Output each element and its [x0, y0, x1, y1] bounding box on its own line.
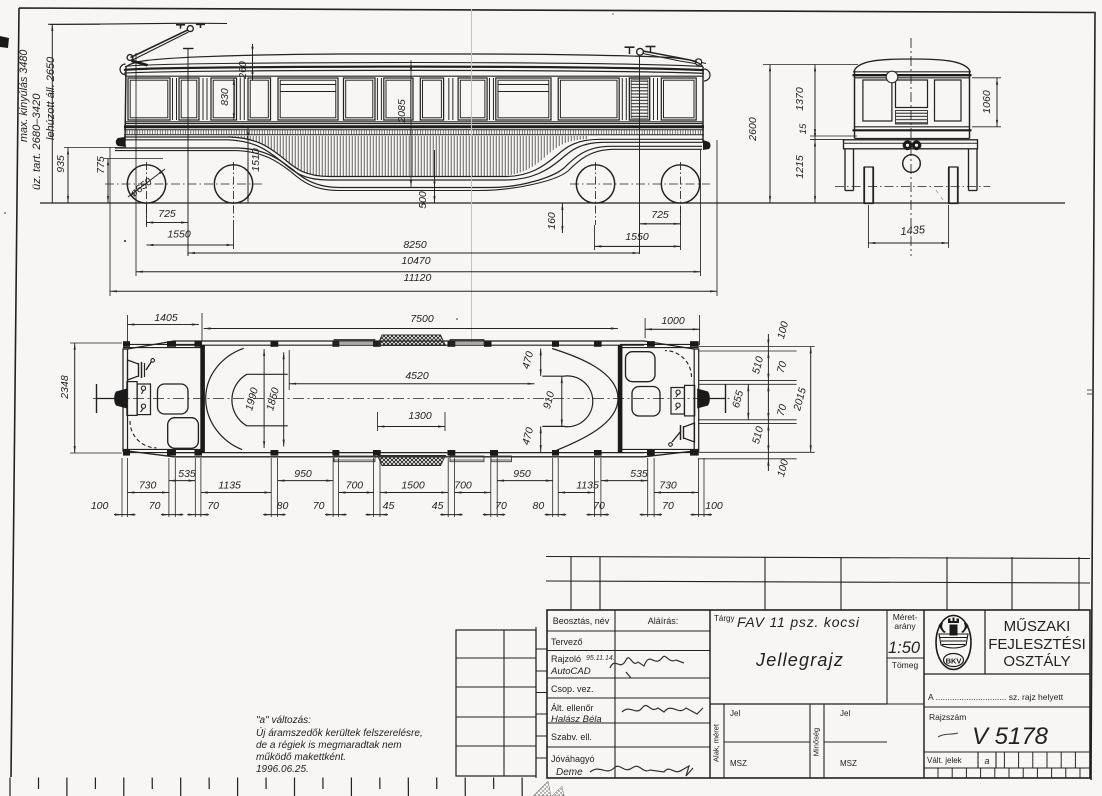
svg-text:100: 100 [705, 500, 723, 512]
svg-text:működő makettként.: működő makettként. [256, 752, 346, 763]
svg-text:Rajzszám: Rajzszám [929, 712, 966, 722]
svg-text:1370: 1370 [794, 87, 806, 111]
svg-text:1550: 1550 [625, 231, 649, 243]
svg-text:80: 80 [277, 500, 289, 512]
svg-text:Jóváhagyó: Jóváhagyó [551, 754, 595, 764]
svg-text:A ............................: A .............................. sz. raj… [928, 692, 1064, 702]
svg-text:V 5178: V 5178 [972, 723, 1049, 750]
svg-text:725: 725 [158, 208, 176, 220]
svg-text:1060: 1060 [981, 90, 993, 114]
svg-text:70: 70 [207, 500, 219, 512]
svg-text:1510: 1510 [250, 148, 262, 172]
svg-text:1300: 1300 [408, 410, 432, 422]
svg-text:lehúzott áll. 2650: lehúzott áll. 2650 [45, 56, 57, 140]
svg-text:535: 535 [178, 468, 196, 480]
svg-text:80: 80 [533, 500, 545, 512]
svg-text:MSZ: MSZ [840, 759, 857, 768]
svg-text:70: 70 [593, 500, 605, 512]
svg-text:1000: 1000 [661, 315, 685, 327]
svg-text:Szabv. ell.: Szabv. ell. [551, 732, 592, 742]
svg-text:45: 45 [432, 500, 444, 512]
svg-text:Tárgy: Tárgy [714, 614, 734, 623]
svg-text:1996.06.25.: 1996.06.25. [256, 764, 309, 775]
svg-text:FEJLESZTÉSI: FEJLESZTÉSI [988, 636, 1086, 653]
svg-text:2600: 2600 [747, 117, 759, 142]
svg-text:10470: 10470 [401, 255, 430, 267]
svg-text:Csop. vez.: Csop. vez. [551, 684, 594, 694]
svg-text:Minőség: Minőség [812, 728, 821, 756]
svg-text:700: 700 [346, 480, 364, 492]
svg-text:Tömeg: Tömeg [892, 660, 919, 670]
svg-text:Jel: Jel [730, 709, 740, 718]
svg-text:Tervező: Tervező [551, 637, 583, 647]
svg-text:a: a [984, 756, 989, 766]
svg-text:Vált. jelek: Vált. jelek [927, 756, 963, 765]
svg-text:2348: 2348 [59, 375, 71, 400]
svg-text:Jel: Jel [840, 709, 850, 718]
svg-text:45: 45 [383, 500, 395, 512]
svg-text:max. kinyúlás 3480: max. kinyúlás 3480 [18, 50, 30, 142]
svg-text:70: 70 [662, 500, 674, 512]
svg-text:70: 70 [313, 500, 325, 512]
svg-text:950: 950 [294, 468, 312, 480]
svg-text:arány: arány [894, 621, 916, 631]
svg-text:üz. tart. 2680–3420: üz. tart. 2680–3420 [31, 93, 43, 190]
svg-text:OSZTÁLY: OSZTÁLY [1003, 653, 1070, 670]
svg-text:1405: 1405 [154, 312, 178, 324]
svg-text:4520: 4520 [405, 370, 429, 382]
svg-text:830: 830 [219, 88, 231, 106]
svg-text:1:50: 1:50 [888, 639, 921, 657]
svg-text:100: 100 [91, 500, 109, 512]
svg-text:260: 260 [237, 61, 249, 80]
svg-text:535: 535 [630, 468, 648, 480]
svg-text:Halász Béla: Halász Béla [551, 714, 602, 725]
svg-text:11120: 11120 [404, 272, 432, 284]
svg-text:Alak, méret: Alak, méret [712, 723, 721, 762]
svg-text:FAV 11 psz. kocsi: FAV 11 psz. kocsi [737, 614, 860, 630]
svg-text:730: 730 [139, 480, 157, 492]
svg-text:1500: 1500 [401, 480, 425, 492]
svg-text:15: 15 [798, 123, 809, 134]
svg-text:160: 160 [546, 212, 558, 230]
svg-text:AutoCAD: AutoCAD [550, 666, 591, 677]
svg-text:Új áramszedők kerültek felszer: Új áramszedők kerültek felszerelésre, [256, 726, 423, 739]
svg-text:1550: 1550 [167, 229, 191, 241]
svg-text:Ált. ellenőr: Ált. ellenőr [551, 703, 594, 713]
svg-text:MŰSZAKI: MŰSZAKI [1004, 618, 1071, 635]
svg-text:1135: 1135 [576, 480, 599, 492]
svg-text:Jellegrajz: Jellegrajz [755, 650, 844, 670]
svg-text:775: 775 [95, 156, 107, 174]
svg-text:7500: 7500 [410, 313, 434, 325]
svg-text:Rajzoló: Rajzoló [551, 654, 581, 664]
svg-text:500: 500 [417, 191, 429, 209]
svg-text:8250: 8250 [403, 239, 427, 251]
svg-text:730: 730 [659, 480, 677, 492]
svg-text:Beosztás, név: Beosztás, név [553, 616, 610, 626]
svg-text:700: 700 [454, 480, 472, 492]
svg-text:2085: 2085 [396, 99, 408, 124]
svg-text:1435: 1435 [900, 224, 926, 238]
svg-text:MSZ: MSZ [730, 759, 747, 768]
svg-text:1135: 1135 [218, 480, 241, 492]
svg-text:95.11.14.: 95.11.14. [586, 655, 615, 662]
svg-text:1215: 1215 [794, 155, 806, 179]
svg-text:"a" változás:: "a" változás: [256, 715, 311, 726]
svg-text:de a régiek is megmaradtak nem: de a régiek is megmaradtak nem [256, 740, 402, 751]
svg-text:70: 70 [149, 500, 161, 512]
svg-text:950: 950 [513, 468, 531, 480]
svg-text:70: 70 [495, 500, 507, 512]
svg-text:Aláírás:: Aláírás: [648, 616, 679, 626]
svg-text:725: 725 [651, 209, 669, 221]
svg-text:Deme: Deme [556, 767, 583, 778]
svg-text:935: 935 [55, 155, 67, 173]
svg-text:BKV: BKV [946, 657, 962, 666]
